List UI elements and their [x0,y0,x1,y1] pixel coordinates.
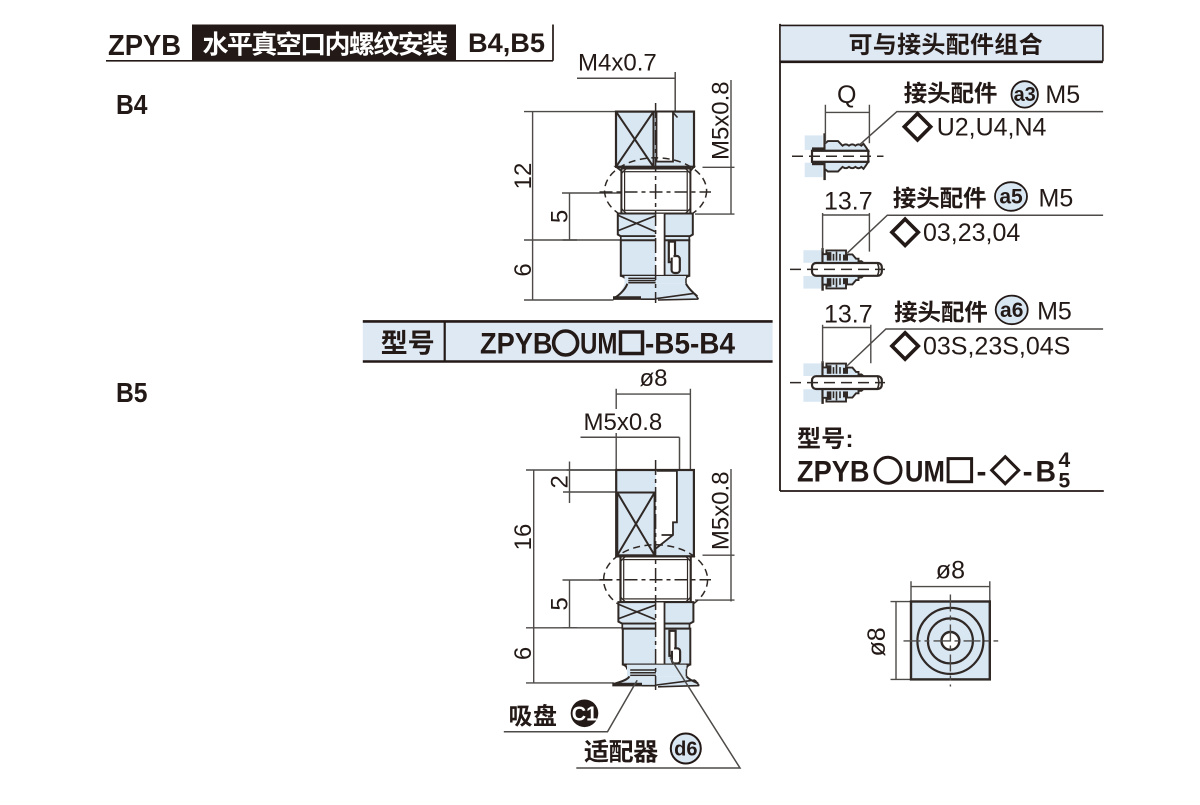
svg-text:U2,U4,N4: U2,U4,N4 [937,114,1047,142]
svg-text:B: B [1036,456,1057,489]
svg-text:6: 6 [510,263,537,276]
svg-text:5: 5 [1059,470,1071,493]
svg-text:6: 6 [510,647,537,660]
svg-text:03S,23S,04S: 03S,23S,04S [923,333,1070,361]
svg-text::: : [846,426,854,453]
svg-text:B4: B4 [116,89,148,120]
svg-text:ZPYB: ZPYB [797,456,870,489]
svg-text:a3: a3 [1014,84,1036,106]
svg-text:C1: C1 [572,703,598,725]
svg-text:ø8: ø8 [863,627,891,656]
svg-text:ø8: ø8 [936,557,965,585]
svg-text:M5: M5 [1039,185,1074,213]
svg-text:M5: M5 [1037,298,1072,326]
svg-text:16: 16 [510,524,537,551]
svg-text:B4,B5: B4,B5 [468,28,545,58]
svg-text:a6: a6 [1000,299,1023,322]
svg-text:M4x0.7: M4x0.7 [578,50,657,77]
svg-text:ZPYB: ZPYB [108,30,181,62]
svg-text:5: 5 [547,597,574,610]
svg-text:03,23,04: 03,23,04 [923,219,1020,247]
svg-text:B5: B5 [116,377,148,408]
svg-text:13.7: 13.7 [824,188,873,216]
svg-text:ø8: ø8 [639,365,667,392]
svg-text:-: - [977,456,987,489]
svg-text:a5: a5 [999,186,1023,209]
svg-text:ZPYB: ZPYB [480,328,553,361]
svg-text:UM: UM [580,328,618,361]
svg-text:-: - [1023,456,1033,489]
svg-text:M5: M5 [1045,81,1080,109]
svg-text:13.7: 13.7 [824,301,873,329]
svg-text:2: 2 [547,475,574,488]
svg-text:5: 5 [547,210,574,223]
svg-text:12: 12 [510,163,537,190]
svg-text:M5x0.8: M5x0.8 [584,409,663,436]
svg-text:d6: d6 [674,739,697,761]
svg-text:-B5-B4: -B5-B4 [645,328,736,361]
svg-text:Q: Q [837,81,856,109]
svg-text:UM: UM [905,456,945,489]
